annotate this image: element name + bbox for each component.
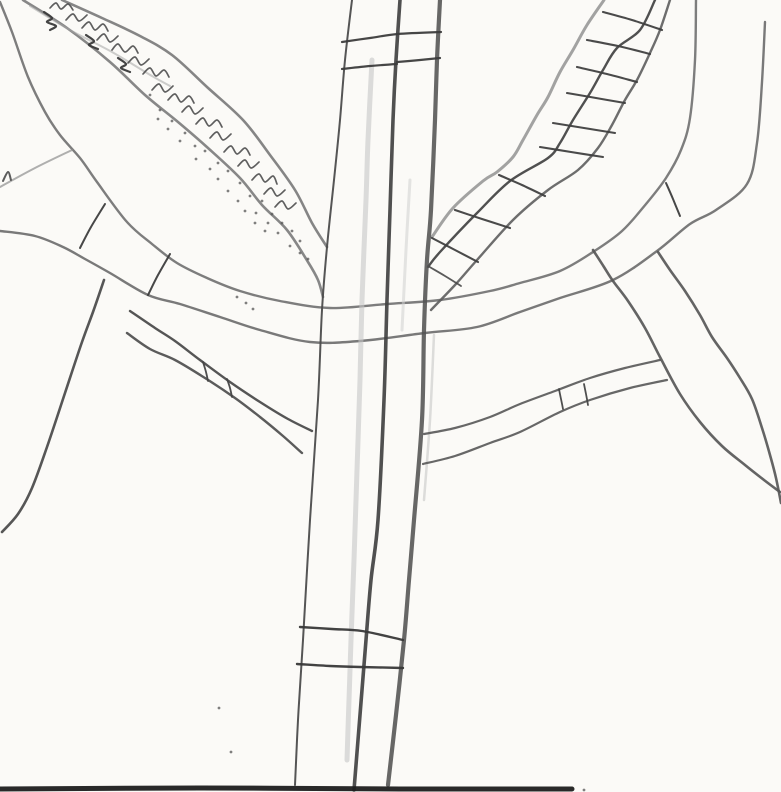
pencil-speck-35 <box>252 308 255 311</box>
pencil-speck-34 <box>245 302 248 305</box>
stroke-scribble-mark-17 <box>275 201 296 209</box>
stroke-branch-road-west-edge <box>593 250 780 492</box>
stroke-scribble-mark-16 <box>264 188 285 196</box>
pencil-speck-9 <box>239 182 242 185</box>
pencil-speck-28 <box>167 128 170 131</box>
pencil-speck-4 <box>184 132 187 135</box>
pencil-speck-25 <box>299 252 302 255</box>
pencil-speck-27 <box>179 140 182 143</box>
stroke-narrow-road-sw-edge <box>127 333 302 453</box>
stroke-scribble-mark-3 <box>82 22 108 31</box>
pencil-speck-15 <box>299 240 302 243</box>
pencil-speck-22 <box>237 200 240 203</box>
pencil-speck-8 <box>227 170 230 173</box>
pencil-speck-11 <box>261 200 264 203</box>
stroke-scribble-band-sw-edge <box>23 0 323 297</box>
sketch-svg <box>0 0 781 792</box>
stroke-lower-left-road-edge <box>2 280 104 532</box>
stroke-left-edge-check-mark <box>3 172 11 181</box>
pencil-speck-20 <box>254 222 257 225</box>
pencil-speck-10 <box>249 195 252 198</box>
stroke-arc-tick-c <box>666 183 680 216</box>
stroke-scribble-mark-4 <box>97 34 118 42</box>
pencil-speck-14 <box>291 230 294 233</box>
stroke-rail-rung-8 <box>455 210 510 228</box>
sketch-paper <box>0 0 781 792</box>
stroke-scribble-mark-11 <box>196 118 222 127</box>
stroke-lower-right-road-tick-1 <box>559 389 563 409</box>
stroke-scribble-mark-15 <box>252 174 277 184</box>
pencil-speck-1 <box>149 94 152 97</box>
pencil-speck-19 <box>244 210 247 213</box>
stroke-scribble-mark-14 <box>238 160 259 168</box>
pencil-speck-36 <box>218 707 221 710</box>
stroke-rail-rung-2 <box>587 40 650 54</box>
stroke-rail-west-edge <box>432 0 604 237</box>
pencil-speck-24 <box>289 245 292 248</box>
pencil-speck-17 <box>209 168 212 171</box>
pencil-speck-21 <box>264 230 267 233</box>
stroke-scribble-mark-10 <box>182 106 203 114</box>
stroke-rail-rung-1 <box>603 12 662 30</box>
stroke-vertical-road-smudge-2 <box>402 180 410 330</box>
stroke-scribble-mark-13 <box>224 146 250 155</box>
pencil-speck-31 <box>267 222 270 225</box>
stroke-arc-tick-a <box>80 204 105 248</box>
stroke-arc-lower-road-edge <box>0 22 765 343</box>
stroke-vertical-road-smudge-1 <box>347 60 372 760</box>
pencil-speck-12 <box>271 213 274 216</box>
stroke-scan-bottom-bar <box>0 788 572 789</box>
pencil-speck-23 <box>217 178 220 181</box>
stroke-scribble-mark-12 <box>210 132 231 140</box>
pencil-speck-29 <box>157 118 160 121</box>
pencil-speck-38 <box>583 789 586 792</box>
pencil-speck-30 <box>277 232 280 235</box>
stroke-lower-right-road-lower-edge <box>423 380 667 464</box>
stroke-arc-upper-road-edge <box>0 0 696 308</box>
stroke-rail-rung-4 <box>567 93 625 103</box>
pencil-speck-5 <box>194 145 197 148</box>
pencil-speck-6 <box>204 150 207 153</box>
stroke-rail-middle-line <box>428 0 655 267</box>
stroke-branch-road-east-edge <box>658 252 781 503</box>
pencil-speck-7 <box>217 162 220 165</box>
pencil-speck-26 <box>307 258 310 261</box>
pencil-speck-16 <box>227 190 230 193</box>
stroke-narrow-road-ne-edge <box>130 311 312 431</box>
stroke-scribble-mark-9 <box>168 94 194 103</box>
pencil-speck-37 <box>230 751 233 754</box>
pencil-speck-13 <box>281 222 284 225</box>
pencil-speck-2 <box>159 109 162 112</box>
stroke-crosswalk-top-bar-2 <box>397 58 440 62</box>
stroke-rail-rung-3 <box>577 67 637 82</box>
pencil-speck-32 <box>255 212 258 215</box>
stroke-lower-right-road-upper-edge <box>424 360 660 434</box>
stroke-arc-left-spur <box>0 150 72 187</box>
pencil-speck-33 <box>236 296 239 299</box>
stroke-scribble-mark-5 <box>112 44 138 53</box>
stroke-arc-tick-b <box>148 254 170 295</box>
stroke-rail-rung-5 <box>553 123 615 133</box>
stroke-rail-rung-10 <box>428 266 461 286</box>
stroke-rail-rung-9 <box>432 238 478 262</box>
pencil-speck-18 <box>195 158 198 161</box>
pencil-speck-3 <box>171 120 174 123</box>
stroke-scribble-mark-1 <box>50 3 73 10</box>
stroke-scribble-mark-2 <box>66 14 87 21</box>
stroke-crosswalk-top-bar-1 <box>342 32 441 42</box>
